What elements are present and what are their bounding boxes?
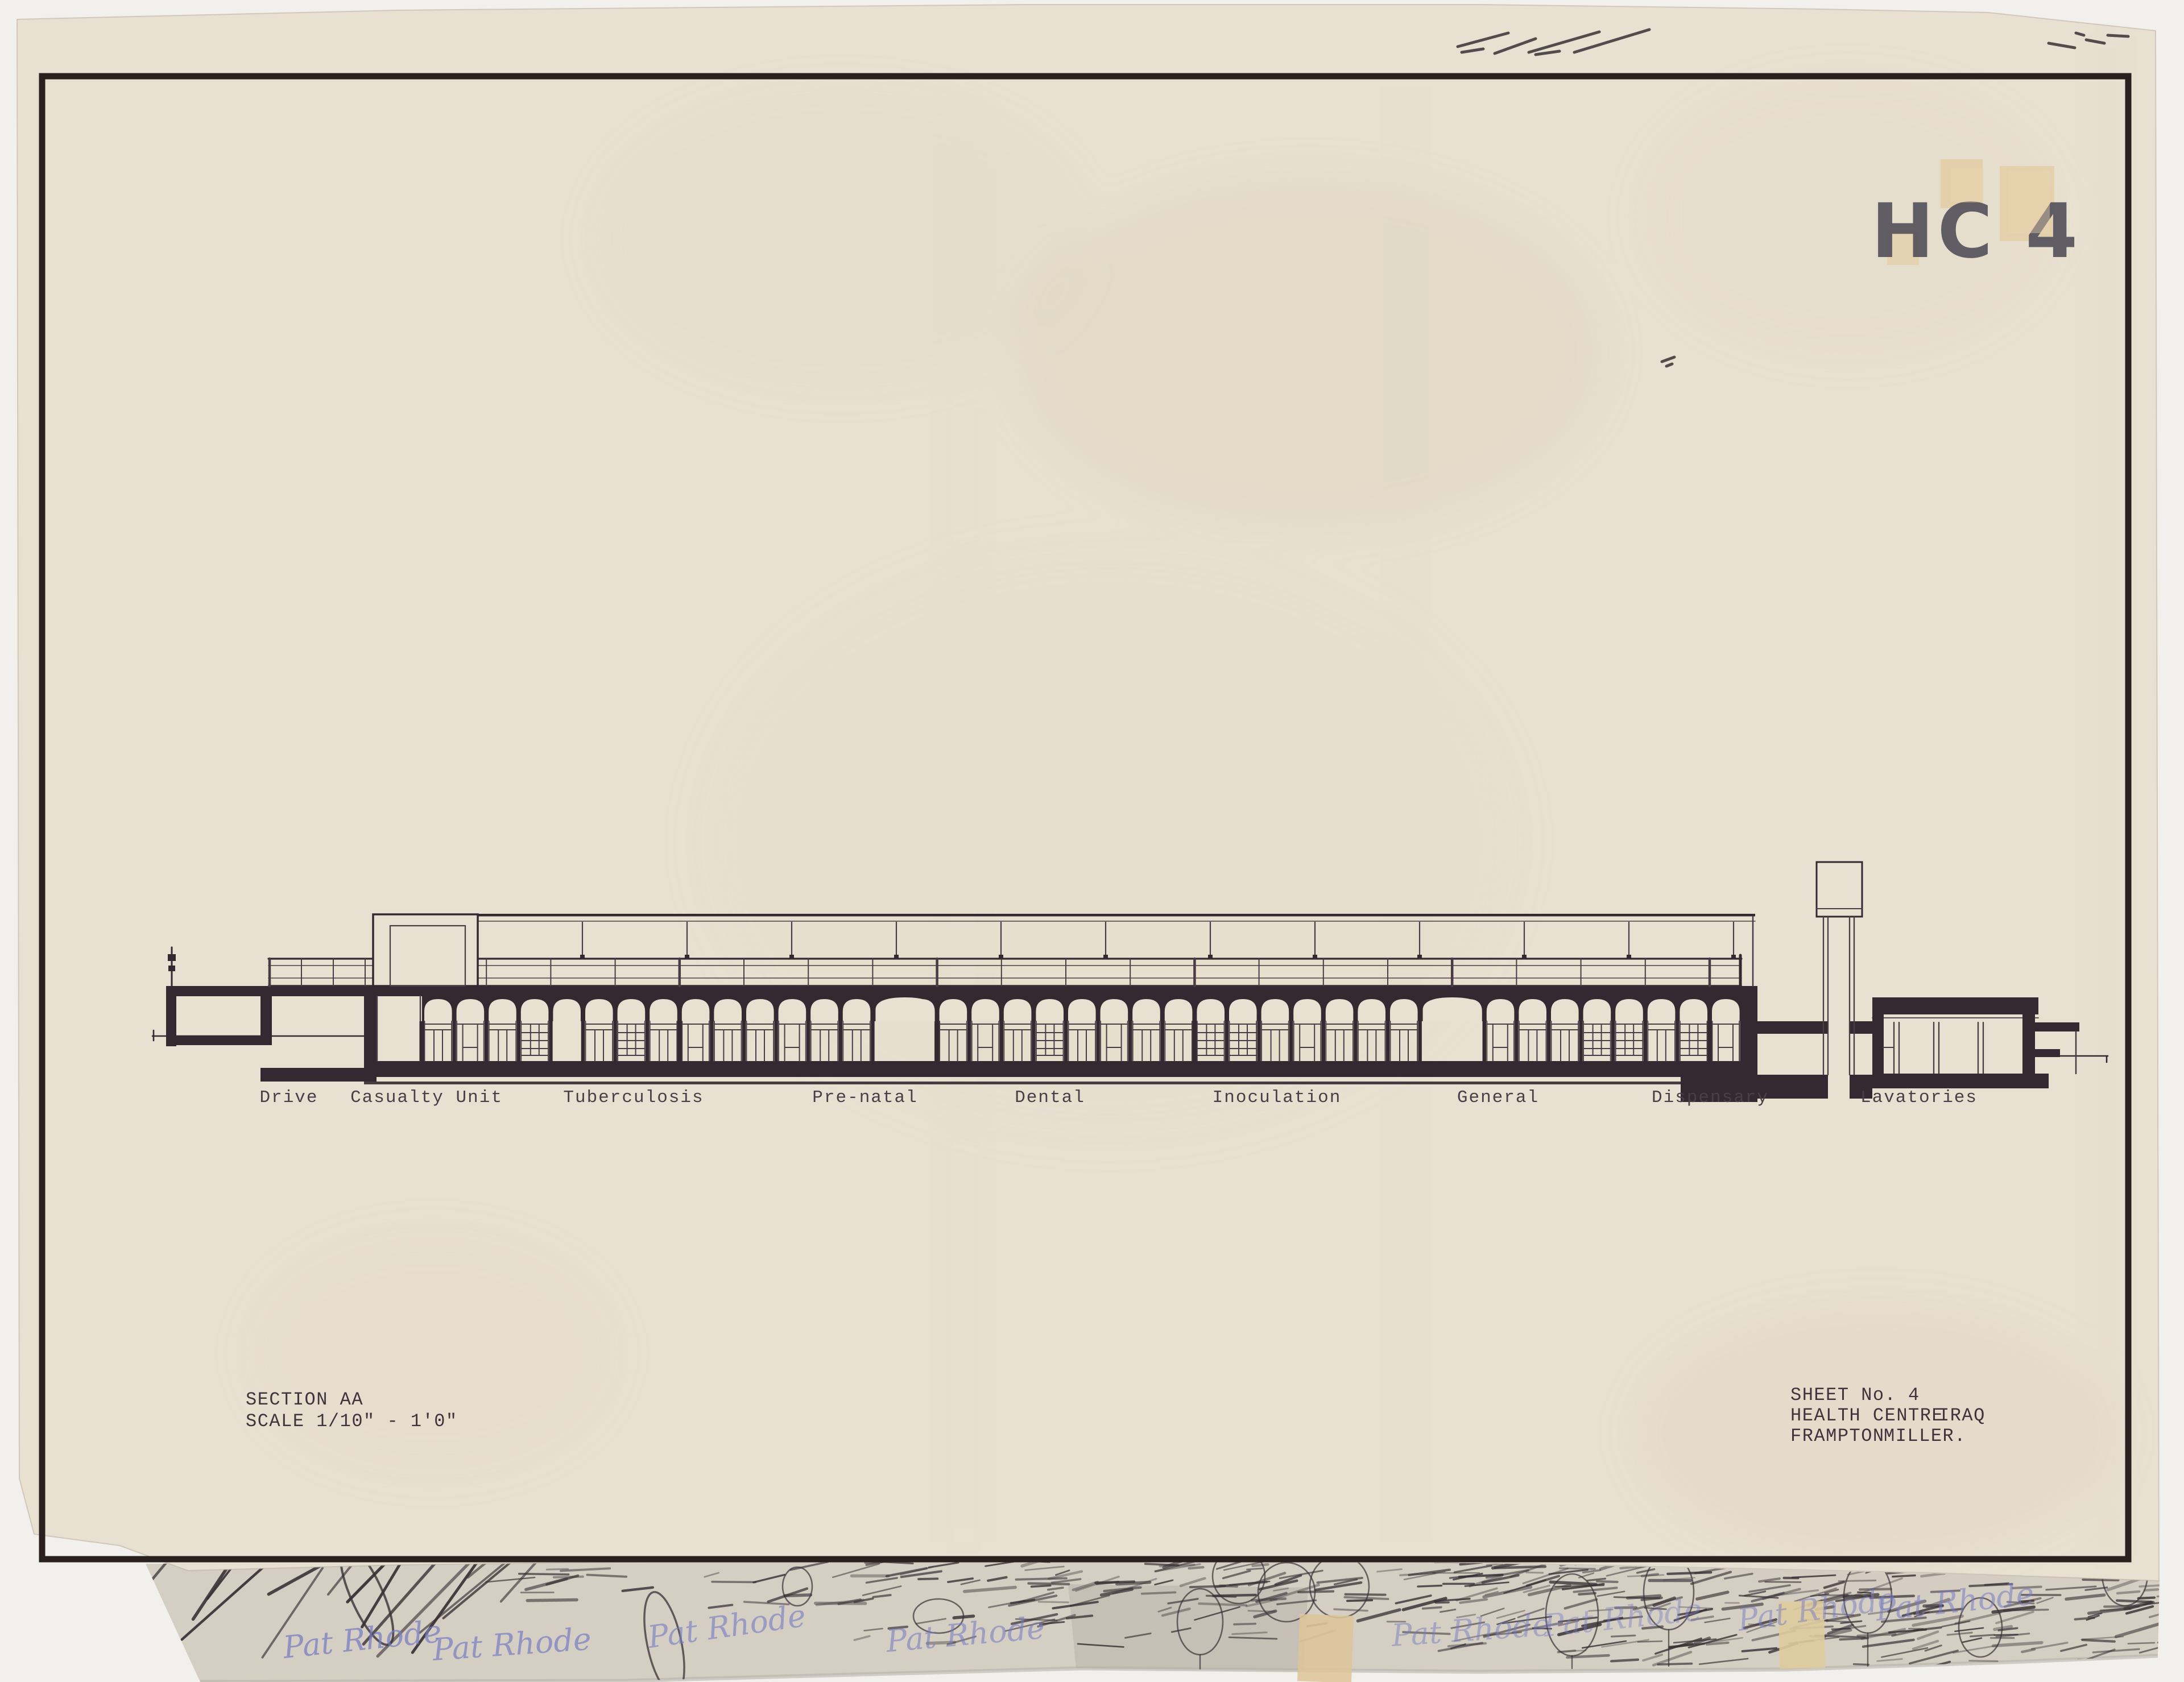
architect-name: MILLER. <box>1884 1426 1966 1447</box>
room-label-drive: Drive <box>259 1088 318 1108</box>
tape-patch <box>1297 1614 1354 1682</box>
room-label-casualty: Casualty Unit <box>350 1088 503 1108</box>
room-label-dental: Dental <box>1015 1088 1085 1108</box>
scale-note: SCALE 1/10" - 1'0" <box>246 1411 458 1432</box>
section-drawing-canvas: Pat RhodePat RhodePat RhodePat RhodePat … <box>0 0 2184 1682</box>
room-label-lavatories: Lavatories <box>1860 1088 1978 1108</box>
room-label-general: General <box>1457 1088 1539 1108</box>
section-title: SECTION AA <box>246 1389 363 1410</box>
room-label-dispensary: Dispensary <box>1652 1088 1769 1108</box>
tape-patch <box>2008 171 2050 233</box>
sheet-number: SHEET No. 4 <box>1790 1385 1920 1406</box>
room-label-prenatal: Pre-natal <box>812 1088 917 1108</box>
blueprint-sheet: Pat RhodePat RhodePat RhodePat RhodePat … <box>0 0 2184 1682</box>
project-country: IRAQ <box>1938 1405 1986 1426</box>
tape-patch <box>1951 168 1984 202</box>
architect-name: FRAMPTON <box>1790 1426 1885 1447</box>
room-label-tuberculosis: Tuberculosis <box>563 1088 704 1108</box>
room-label-inoculation: Inoculation <box>1213 1088 1342 1108</box>
project-name: HEALTH CENTRE <box>1790 1405 1943 1426</box>
